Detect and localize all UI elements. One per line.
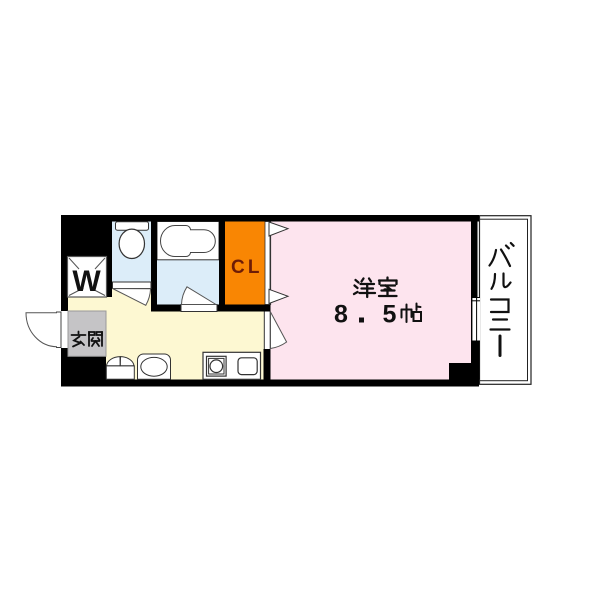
svg-text:5: 5	[383, 301, 397, 329]
svg-text:8: 8	[334, 301, 348, 329]
svg-text:CL: CL	[231, 257, 263, 278]
svg-text:W: W	[72, 265, 101, 298]
